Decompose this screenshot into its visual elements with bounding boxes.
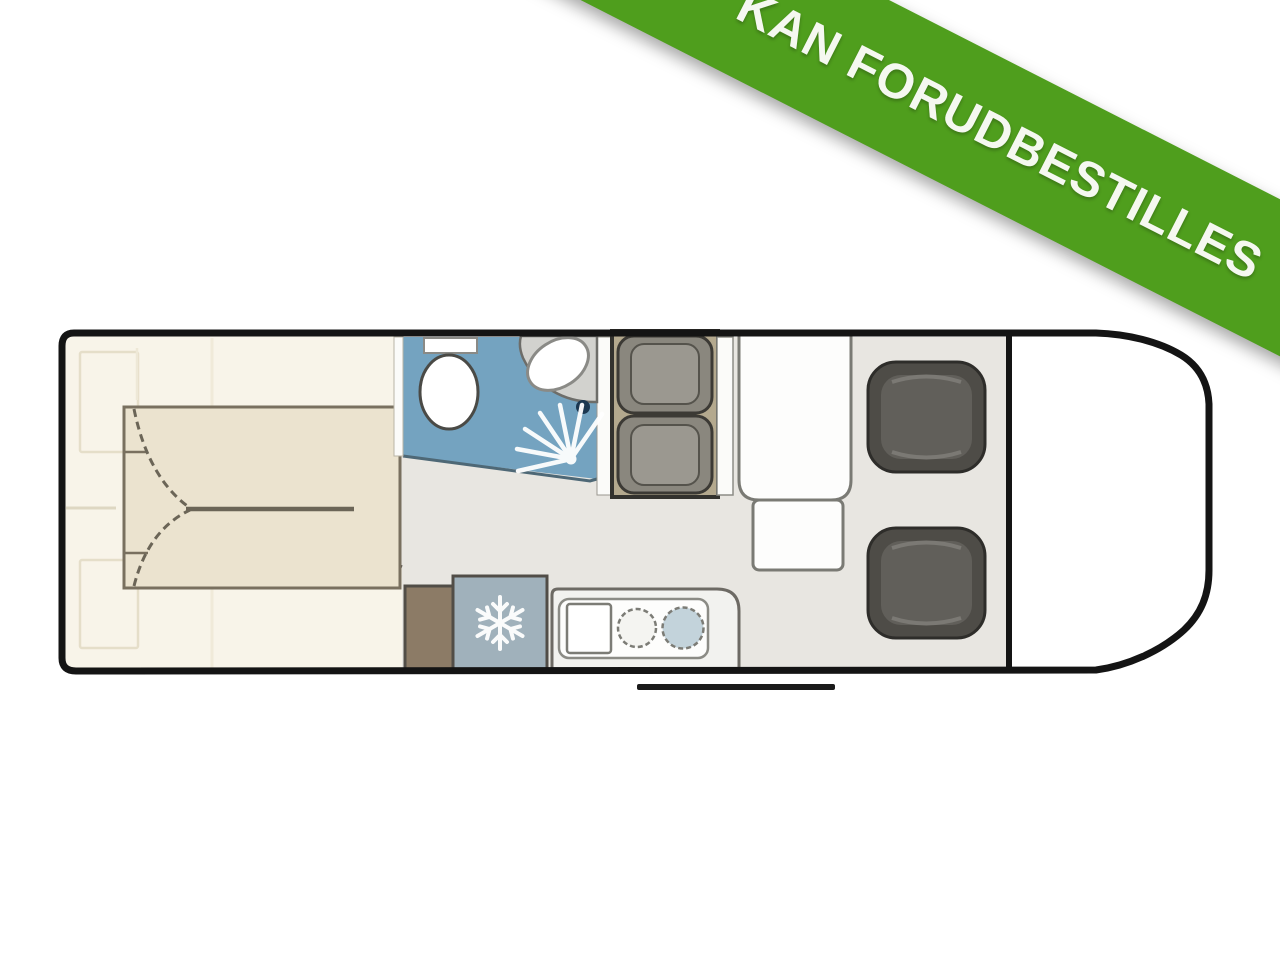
hob-burner-icon (618, 609, 656, 647)
bathroom-wall-left (394, 337, 403, 456)
table-top (739, 334, 851, 500)
side-table (739, 334, 851, 570)
toilet-icon (420, 355, 478, 429)
passenger-swivel-seat (868, 362, 985, 472)
dinette-seat-top-cushion (631, 344, 699, 404)
kitchen-cabinet (405, 586, 453, 671)
kitchen (405, 576, 739, 671)
entry-step (637, 684, 835, 690)
twin-beds (124, 407, 400, 588)
dinette-seat-bottom-cushion (631, 425, 699, 485)
dinette (612, 331, 718, 497)
bed-mattresses (124, 407, 400, 588)
driver-swivel-seat (868, 528, 985, 638)
kitchen-sink-square (567, 604, 611, 653)
toilet-cistern (424, 338, 477, 353)
partition-wall (717, 337, 733, 495)
sink-bowl-round-icon (663, 608, 704, 649)
screenshot-root: { "banner": { "label": "KAN FORUDBESTILL… (0, 0, 1280, 960)
table-extension (753, 500, 843, 570)
